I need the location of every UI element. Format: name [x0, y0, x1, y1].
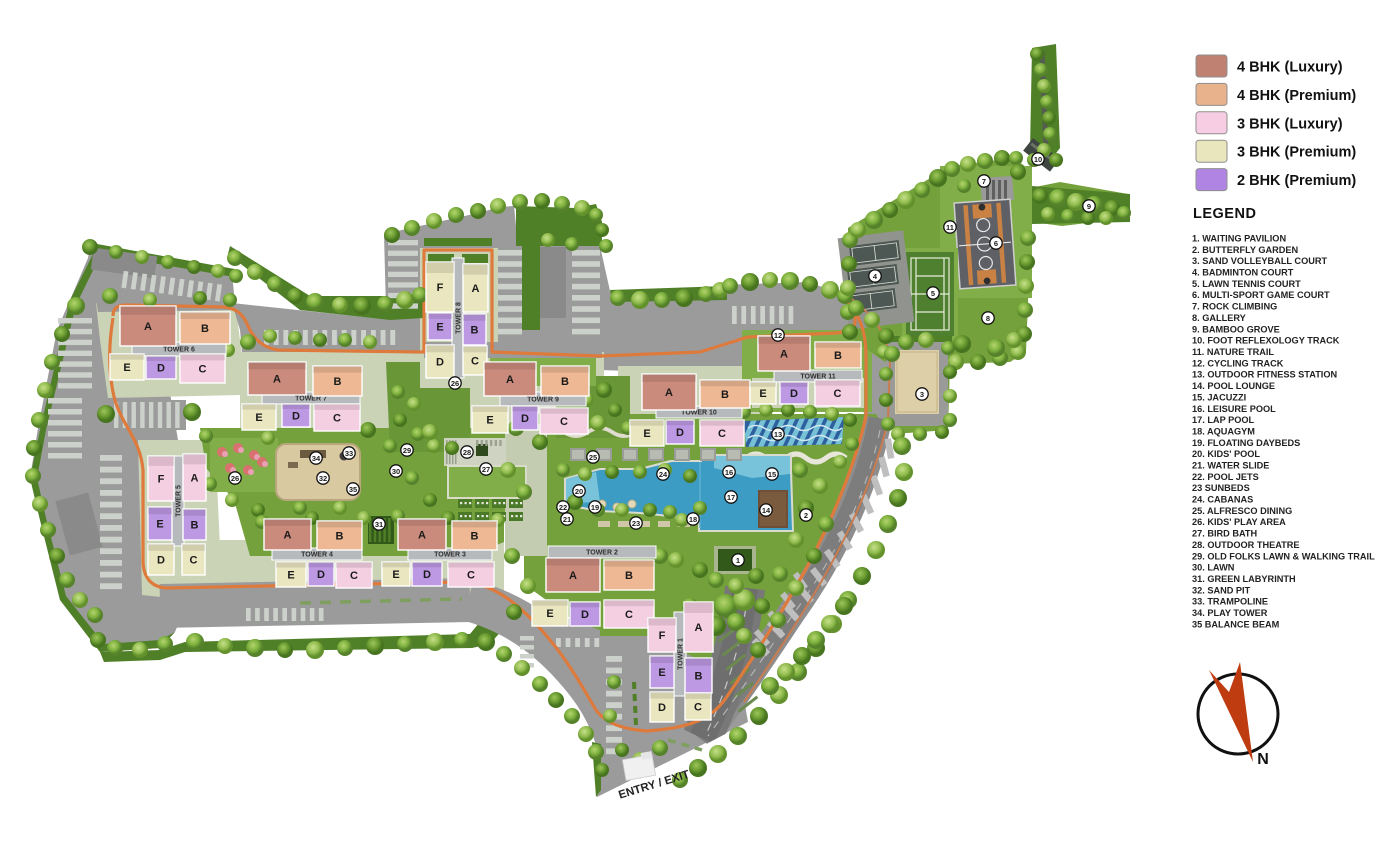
svg-text:24. CABANAS: 24. CABANAS — [1192, 495, 1253, 505]
svg-text:C: C — [199, 364, 207, 376]
svg-text:A: A — [780, 349, 788, 361]
svg-text:B: B — [201, 323, 209, 335]
svg-text:D: D — [658, 702, 666, 714]
svg-text:15: 15 — [768, 470, 776, 479]
svg-text:TOWER 9: TOWER 9 — [527, 397, 559, 404]
svg-text:C: C — [333, 413, 341, 425]
svg-text:D: D — [423, 569, 431, 581]
svg-text:11: 11 — [946, 223, 954, 232]
svg-text:A: A — [569, 570, 577, 582]
svg-text:B: B — [695, 671, 703, 683]
svg-text:E: E — [486, 415, 493, 427]
svg-text:A: A — [418, 530, 426, 542]
svg-text:22. POOL JETS: 22. POOL JETS — [1192, 472, 1259, 482]
svg-text:5. LAWN TENNIS COURT: 5. LAWN TENNIS COURT — [1192, 279, 1301, 289]
svg-text:3. SAND VOLLEYBALL COURT: 3. SAND VOLLEYBALL COURT — [1192, 256, 1327, 266]
svg-text:3 BHK (Premium): 3 BHK (Premium) — [1237, 145, 1356, 161]
svg-text:C: C — [560, 416, 568, 428]
svg-text:14. POOL LOUNGE: 14. POOL LOUNGE — [1192, 381, 1275, 391]
svg-text:TOWER 4: TOWER 4 — [301, 552, 333, 559]
svg-text:4 BHK (Luxury): 4 BHK (Luxury) — [1237, 60, 1343, 76]
svg-text:28: 28 — [463, 448, 471, 457]
svg-text:D: D — [292, 411, 300, 423]
svg-text:C: C — [190, 555, 198, 567]
svg-text:8. GALLERY: 8. GALLERY — [1192, 313, 1246, 323]
svg-text:7: 7 — [982, 177, 986, 186]
svg-text:3 BHK (Luxury): 3 BHK (Luxury) — [1237, 116, 1343, 132]
svg-text:2 BHK (Premium): 2 BHK (Premium) — [1237, 173, 1356, 189]
svg-text:33. TRAMPOLINE: 33. TRAMPOLINE — [1192, 597, 1268, 607]
svg-text:32: 32 — [319, 474, 327, 483]
svg-text:22: 22 — [559, 503, 567, 512]
svg-text:10: 10 — [1034, 155, 1042, 164]
svg-text:B: B — [834, 350, 842, 362]
svg-text:20: 20 — [575, 487, 583, 496]
svg-text:C: C — [467, 570, 475, 582]
svg-text:E: E — [156, 519, 163, 531]
svg-text:E: E — [436, 322, 443, 334]
svg-text:A: A — [695, 622, 703, 634]
svg-text:C: C — [625, 609, 633, 621]
svg-text:28. OUTDOOR THEATRE: 28. OUTDOOR THEATRE — [1192, 540, 1300, 550]
svg-text:D: D — [157, 363, 165, 375]
svg-text:A: A — [284, 530, 292, 542]
svg-text:TOWER 5: TOWER 5 — [176, 485, 183, 517]
svg-text:21. WATER SLIDE: 21. WATER SLIDE — [1192, 461, 1269, 471]
svg-text:B: B — [334, 376, 342, 388]
svg-text:24: 24 — [659, 470, 668, 479]
svg-text:21: 21 — [563, 515, 571, 524]
svg-text:D: D — [157, 555, 165, 567]
svg-text:15. JACUZZI: 15. JACUZZI — [1192, 392, 1246, 402]
svg-text:A: A — [472, 283, 480, 295]
svg-text:D: D — [581, 609, 589, 621]
svg-text:35: 35 — [349, 485, 357, 494]
svg-text:14: 14 — [762, 506, 771, 515]
svg-text:7. ROCK CLIMBING: 7. ROCK CLIMBING — [1192, 302, 1277, 312]
svg-text:16: 16 — [725, 468, 733, 477]
svg-text:9: 9 — [1087, 202, 1091, 211]
svg-text:6: 6 — [994, 239, 998, 248]
svg-text:E: E — [255, 412, 262, 424]
svg-text:A: A — [506, 374, 514, 386]
svg-text:29: 29 — [403, 446, 411, 455]
svg-text:E: E — [392, 569, 399, 581]
svg-text:D: D — [521, 413, 529, 425]
svg-text:F: F — [659, 630, 666, 642]
svg-text:34: 34 — [312, 454, 321, 463]
svg-text:B: B — [561, 376, 569, 388]
svg-text:D: D — [436, 357, 444, 369]
svg-text:TOWER 6: TOWER 6 — [163, 347, 195, 354]
svg-text:2. BUTTERFLY GARDEN: 2. BUTTERFLY GARDEN — [1192, 245, 1299, 255]
svg-text:E: E — [658, 667, 665, 679]
svg-text:1: 1 — [736, 556, 740, 565]
svg-text:19: 19 — [591, 503, 599, 512]
svg-text:E: E — [123, 362, 130, 374]
svg-text:32. SAND PIT: 32. SAND PIT — [1192, 585, 1251, 595]
svg-text:12: 12 — [774, 331, 782, 340]
svg-text:4. BADMINTON COURT: 4. BADMINTON COURT — [1192, 268, 1294, 278]
svg-text:B: B — [336, 531, 344, 543]
svg-text:18. AQUAGYM: 18. AQUAGYM — [1192, 426, 1255, 436]
svg-text:1. WAITING PAVILION: 1. WAITING PAVILION — [1192, 234, 1286, 244]
svg-text:F: F — [437, 282, 444, 294]
svg-text:23: 23 — [632, 519, 640, 528]
svg-text:F: F — [158, 474, 165, 486]
svg-text:D: D — [676, 427, 684, 439]
svg-text:A: A — [273, 374, 281, 386]
svg-text:C: C — [834, 388, 842, 400]
svg-text:9. BAMBOO GROVE: 9. BAMBOO GROVE — [1192, 324, 1280, 334]
svg-text:20. KIDS' POOL: 20. KIDS' POOL — [1192, 449, 1260, 459]
svg-text:30: 30 — [392, 467, 400, 476]
svg-text:TOWER 3: TOWER 3 — [434, 552, 466, 559]
svg-text:C: C — [718, 428, 726, 440]
svg-text:E: E — [643, 428, 650, 440]
svg-text:19. FLOATING DAYBEDS: 19. FLOATING DAYBEDS — [1192, 438, 1300, 448]
svg-text:13: 13 — [774, 430, 782, 439]
svg-text:23 SUNBEDS: 23 SUNBEDS — [1192, 483, 1250, 493]
svg-text:C: C — [350, 570, 358, 582]
svg-text:B: B — [191, 520, 199, 532]
svg-text:17. LAP POOL: 17. LAP POOL — [1192, 415, 1255, 425]
svg-text:25. ALFRESCO DINING: 25. ALFRESCO DINING — [1192, 506, 1292, 516]
svg-text:N: N — [1257, 751, 1269, 768]
svg-text:5: 5 — [931, 289, 935, 298]
svg-text:3: 3 — [920, 390, 924, 399]
svg-text:35 BALANCE BEAM: 35 BALANCE BEAM — [1192, 619, 1280, 629]
svg-text:13. OUTDOOR FITNESS STATION: 13. OUTDOOR FITNESS STATION — [1192, 370, 1338, 380]
svg-text:27. BIRD BATH: 27. BIRD BATH — [1192, 529, 1258, 539]
svg-text:A: A — [665, 387, 673, 399]
svg-text:6. MULTI-SPORT GAME COURT: 6. MULTI-SPORT GAME COURT — [1192, 290, 1330, 300]
svg-text:A: A — [191, 473, 199, 485]
svg-text:A: A — [144, 321, 152, 333]
svg-text:30. LAWN: 30. LAWN — [1192, 563, 1235, 573]
svg-text:8: 8 — [986, 314, 990, 323]
svg-text:B: B — [721, 389, 729, 401]
svg-text:E: E — [287, 570, 294, 582]
svg-text:31. GREEN LABYRINTH: 31. GREEN LABYRINTH — [1192, 574, 1296, 584]
svg-text:C: C — [471, 356, 479, 368]
svg-text:33: 33 — [345, 449, 353, 458]
svg-text:B: B — [471, 325, 479, 337]
svg-text:27: 27 — [482, 465, 490, 474]
svg-text:D: D — [790, 388, 798, 400]
svg-text:18: 18 — [689, 515, 697, 524]
svg-text:E: E — [759, 388, 766, 400]
svg-text:2: 2 — [804, 511, 808, 520]
svg-text:10. FOOT REFLEXOLOGY TRACK: 10. FOOT REFLEXOLOGY TRACK — [1192, 336, 1340, 346]
svg-text:31: 31 — [375, 520, 383, 529]
svg-text:TOWER 2: TOWER 2 — [586, 550, 618, 557]
svg-text:26. KIDS' PLAY AREA: 26. KIDS' PLAY AREA — [1192, 517, 1286, 527]
svg-text:16. LEISURE POOL: 16. LEISURE POOL — [1192, 404, 1276, 414]
svg-text:B: B — [471, 531, 479, 543]
svg-text:TOWER 8: TOWER 8 — [456, 302, 463, 334]
svg-text:B: B — [625, 570, 633, 582]
svg-text:29. OLD FOLKS LAWN & WALKING T: 29. OLD FOLKS LAWN & WALKING TRAIL — [1192, 551, 1375, 561]
svg-text:25: 25 — [589, 453, 597, 462]
svg-text:D: D — [317, 569, 325, 581]
svg-text:12. CYCLING TRACK: 12. CYCLING TRACK — [1192, 358, 1284, 368]
svg-text:11. NATURE TRAIL: 11. NATURE TRAIL — [1192, 347, 1274, 357]
svg-text:34. PLAY TOWER: 34. PLAY TOWER — [1192, 608, 1268, 618]
svg-text:4 BHK (Premium): 4 BHK (Premium) — [1237, 88, 1356, 104]
svg-text:17: 17 — [727, 493, 735, 502]
svg-text:LEGEND: LEGEND — [1193, 206, 1256, 222]
svg-text:C: C — [694, 702, 702, 714]
svg-text:26: 26 — [231, 474, 239, 483]
svg-text:E: E — [546, 608, 553, 620]
svg-text:26: 26 — [451, 379, 459, 388]
